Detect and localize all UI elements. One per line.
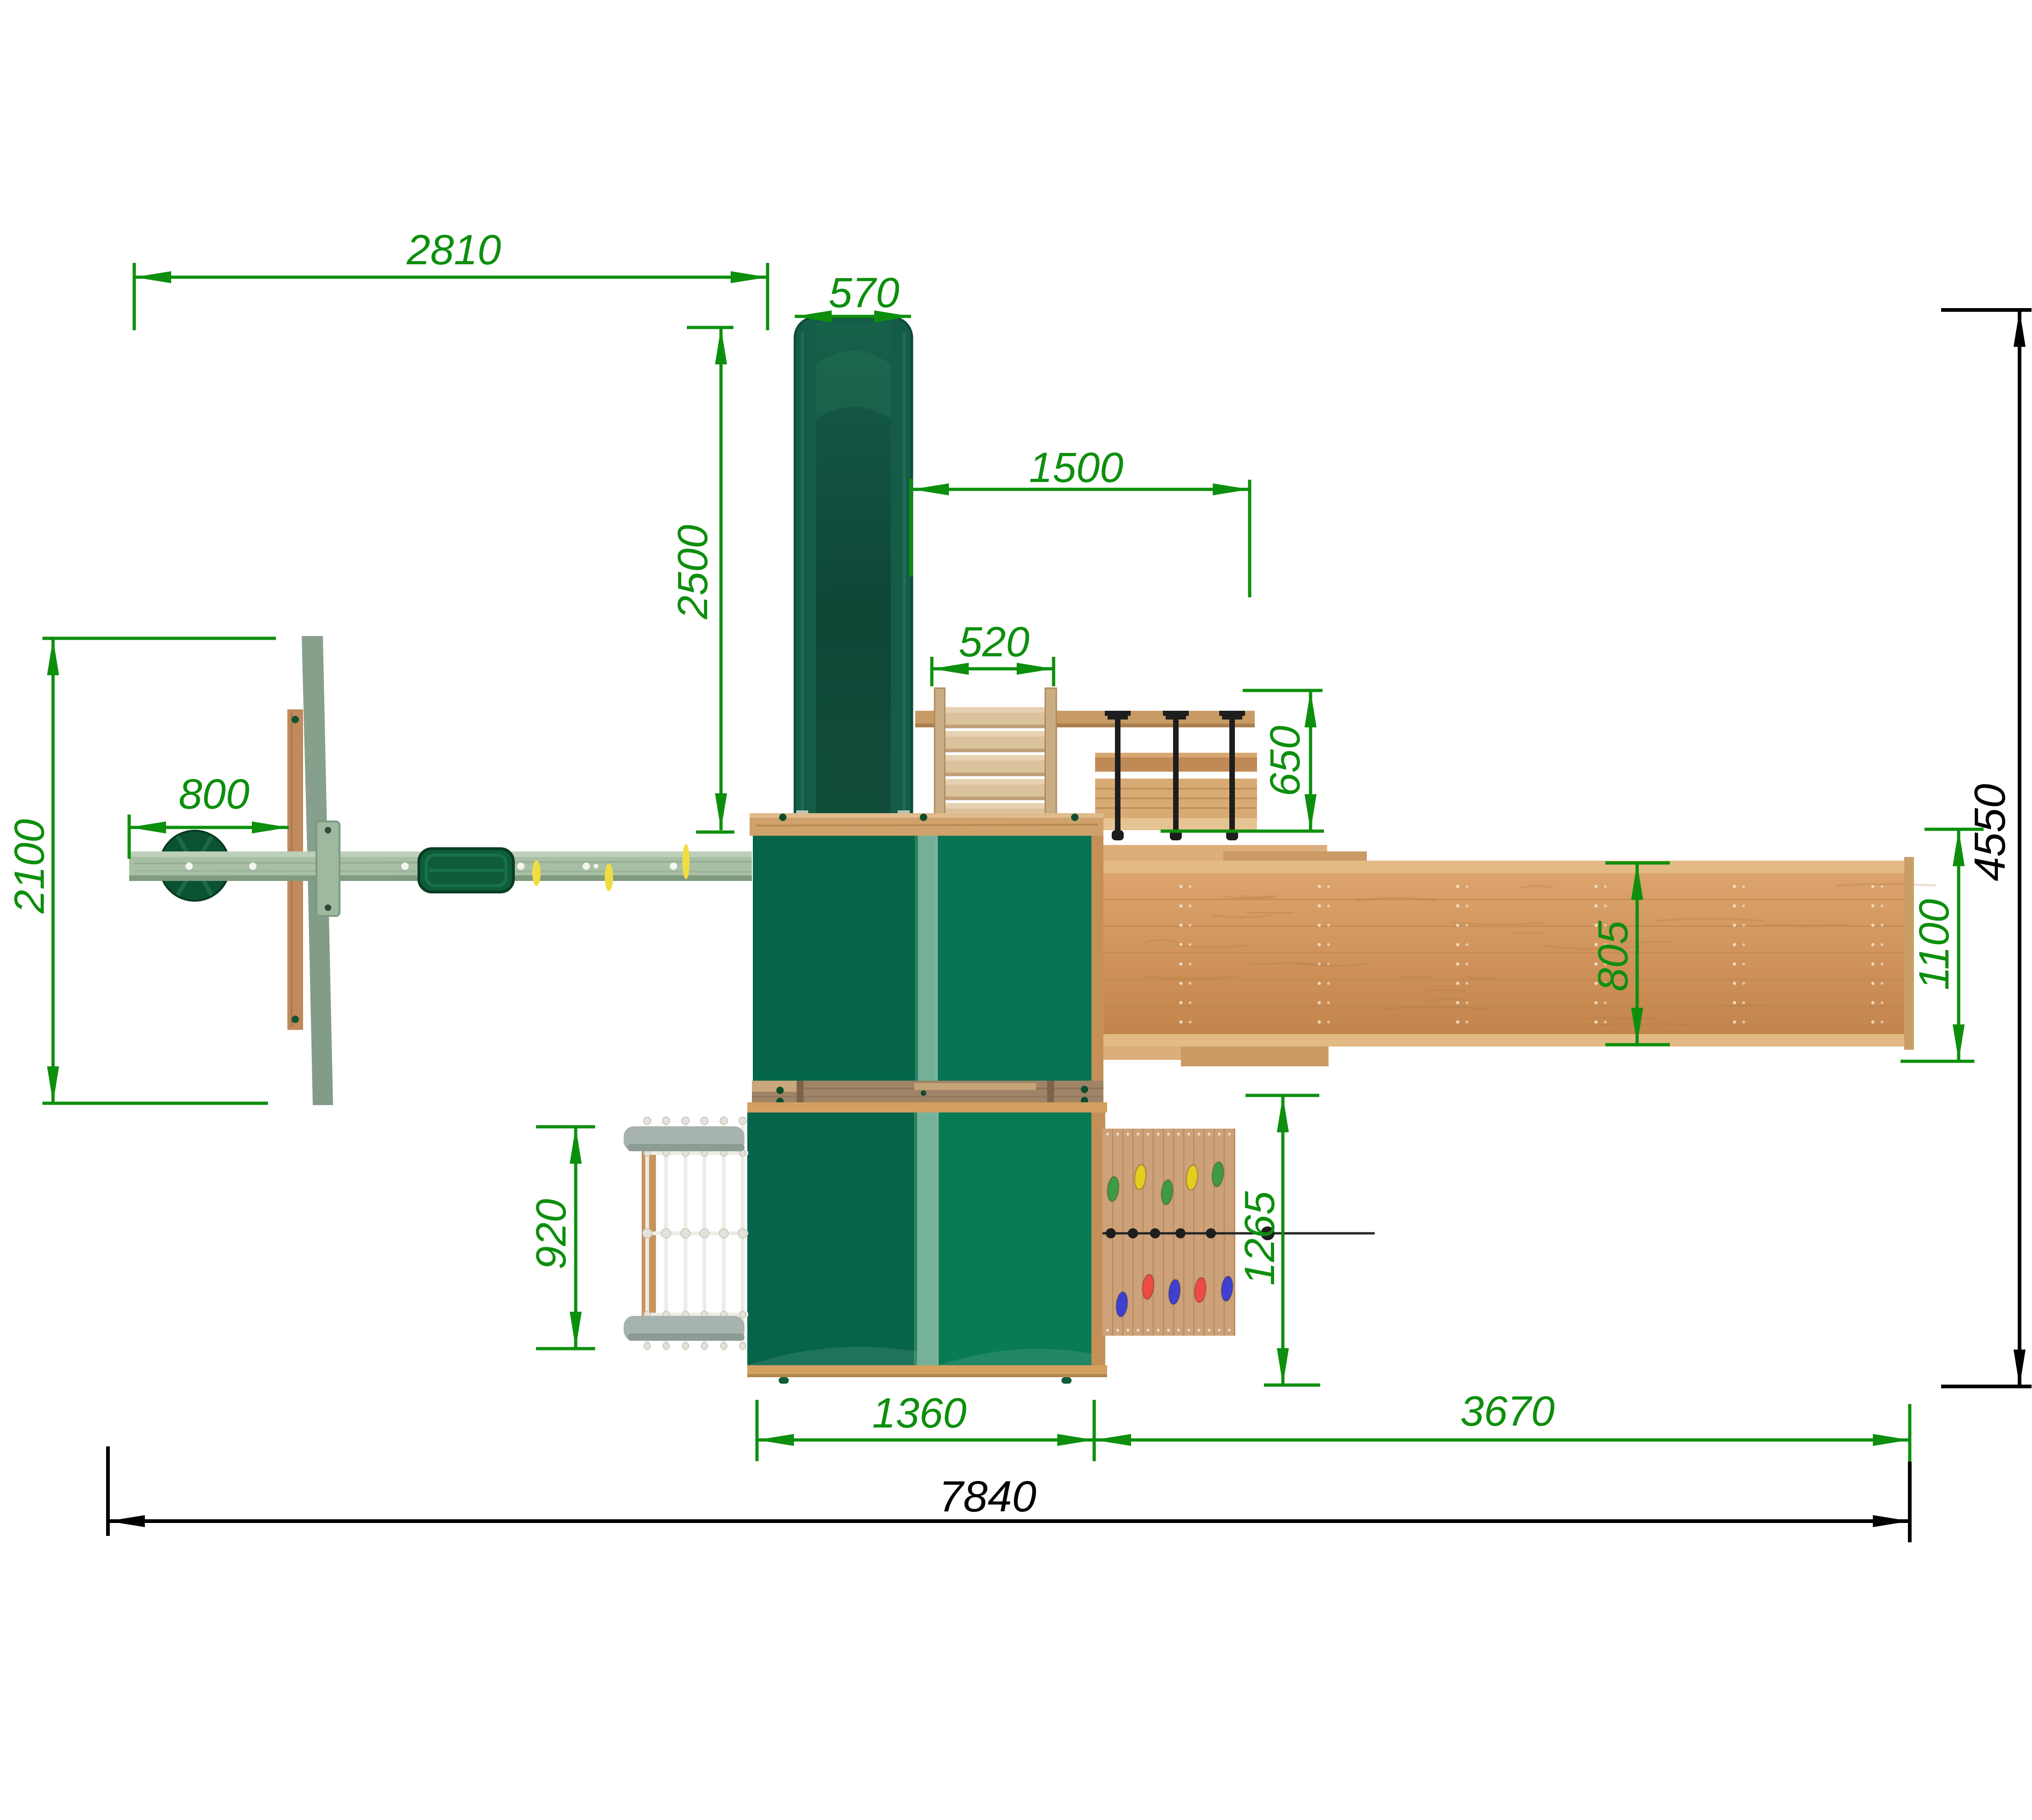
svg-text:1360: 1360: [872, 1390, 967, 1437]
svg-text:1500: 1500: [1029, 444, 1124, 491]
svg-text:570: 570: [828, 269, 900, 316]
svg-text:1100: 1100: [1911, 899, 1958, 990]
svg-text:650: 650: [1262, 726, 1309, 797]
svg-text:520: 520: [959, 619, 1030, 666]
svg-text:805: 805: [1590, 920, 1637, 991]
svg-text:920: 920: [528, 1199, 575, 1270]
svg-text:2500: 2500: [669, 525, 716, 620]
svg-text:800: 800: [179, 771, 250, 818]
svg-text:7840: 7840: [939, 1472, 1037, 1521]
svg-text:1265: 1265: [1236, 1191, 1283, 1285]
svg-text:3670: 3670: [1460, 1388, 1555, 1435]
svg-text:2810: 2810: [406, 226, 501, 274]
svg-text:2100: 2100: [6, 819, 53, 914]
svg-text:4550: 4550: [1966, 784, 2014, 881]
